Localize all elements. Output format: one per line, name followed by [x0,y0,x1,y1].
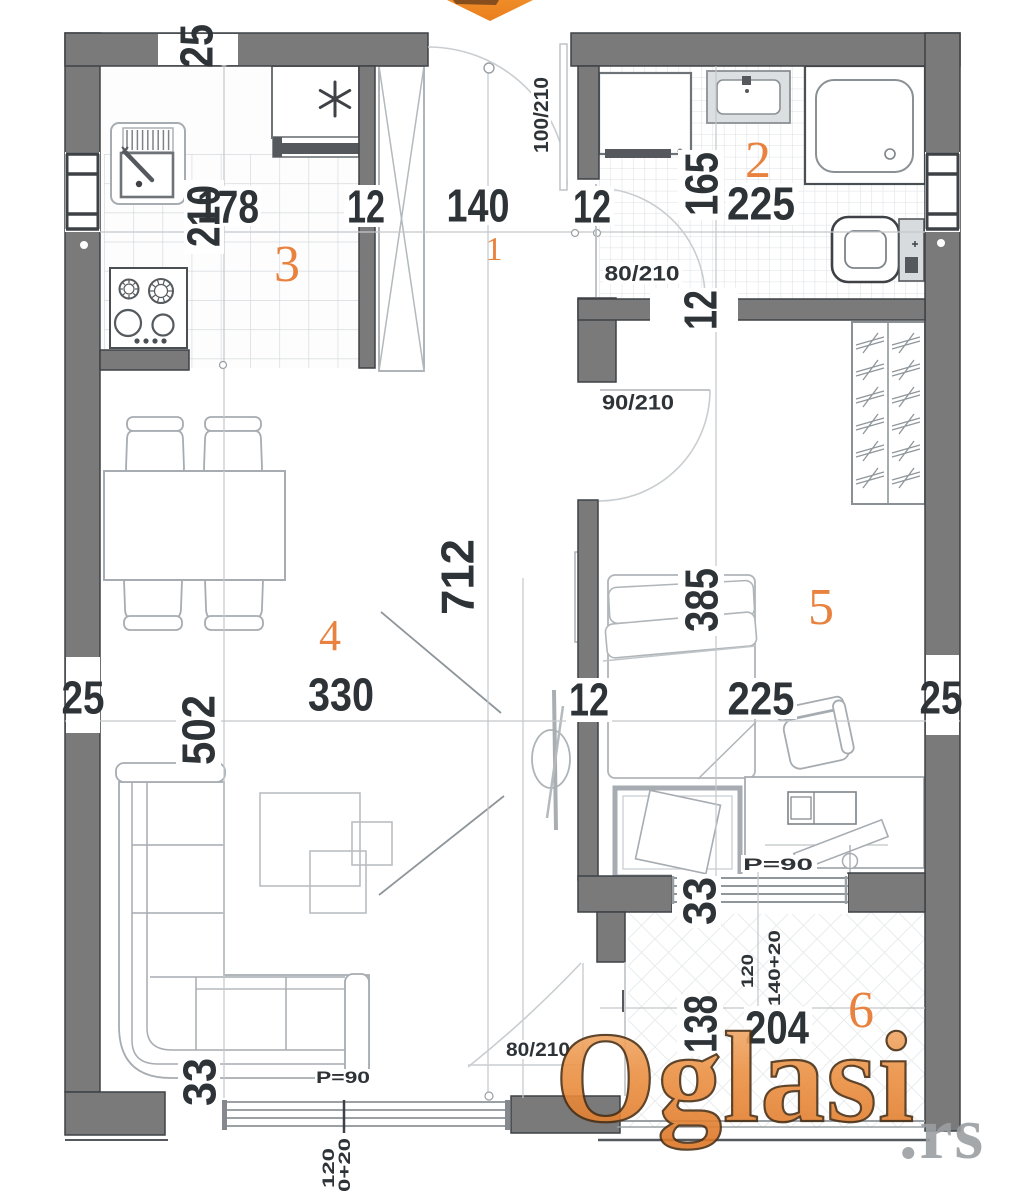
svg-text:P=90: P=90 [743,855,813,874]
svg-text:120: 120 [738,954,757,988]
svg-text:2: 2 [745,132,771,189]
svg-text:P=90: P=90 [316,1068,370,1087]
svg-text:4: 4 [319,611,341,660]
svg-text:12: 12 [569,674,609,726]
svg-text:1: 1 [486,231,503,268]
svg-text:80/210: 80/210 [605,263,680,286]
svg-text:25: 25 [62,672,105,724]
svg-text:.rs: .rs [899,1093,985,1175]
svg-text:33: 33 [674,877,726,925]
svg-text:0+20: 0+20 [335,1138,354,1192]
svg-text:100/210: 100/210 [531,77,553,153]
svg-text:330: 330 [308,669,374,721]
svg-text:385: 385 [676,568,728,632]
svg-text:225: 225 [728,673,795,725]
svg-text:25: 25 [920,672,963,724]
svg-text:5: 5 [808,579,834,636]
svg-text:12: 12 [573,181,611,233]
svg-text:33: 33 [174,1058,226,1106]
svg-text:178: 178 [197,181,259,233]
svg-text:Oglasi: Oglasi [555,1006,915,1150]
svg-text:712: 712 [432,539,484,615]
svg-text:3: 3 [274,236,300,293]
svg-text:12: 12 [347,181,385,233]
svg-text:140+20: 140+20 [765,930,784,1006]
svg-text:25: 25 [171,24,223,68]
svg-text:502: 502 [173,695,225,765]
svg-text:90/210: 90/210 [602,392,674,415]
svg-text:12: 12 [675,290,727,330]
svg-text:140: 140 [447,180,510,232]
svg-text:165: 165 [676,152,728,216]
